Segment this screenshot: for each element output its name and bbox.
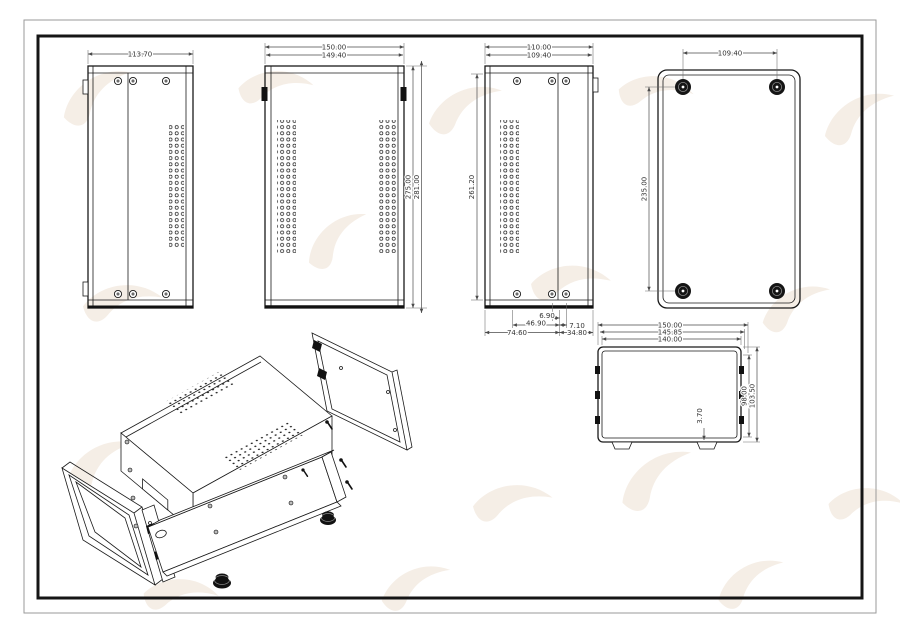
dim-text-b4: 74.60 xyxy=(507,329,527,337)
dim-text-b2: 46.90 xyxy=(526,320,546,328)
edge-clip xyxy=(262,87,268,101)
dim-text-b5: 34.80 xyxy=(567,329,587,337)
vent-holes-strip xyxy=(500,120,519,253)
dimension-heights: 275.00 281.00 xyxy=(405,61,428,313)
bottom-outline xyxy=(658,70,800,308)
dim-text-width-outer: 110.00 xyxy=(527,44,552,52)
dim-text-height: 261.20 xyxy=(468,175,476,200)
dim-text-width-outer: 150.00 xyxy=(322,44,347,52)
dim-text-height-inner: 275.00 xyxy=(405,175,413,200)
front-feet xyxy=(612,442,717,449)
screw-marks xyxy=(114,77,169,297)
vent-holes-strip-left xyxy=(277,120,296,253)
side-tab xyxy=(83,80,88,94)
screw-marks xyxy=(513,77,569,297)
front-outline xyxy=(598,347,741,442)
rubber-feet xyxy=(675,79,785,299)
dim-text-width: 113.70 xyxy=(128,51,153,59)
edge-clip xyxy=(401,87,407,101)
side-tab xyxy=(83,282,88,296)
bottom-inner-outline xyxy=(663,75,795,303)
edge-clips xyxy=(595,366,744,424)
view-front: 150.00 145.85 140.00 98.00 103.50 3.70 xyxy=(595,322,760,450)
dim-text-feet-width: 109.40 xyxy=(718,50,743,58)
dim-text-width-inner: 149.40 xyxy=(322,52,347,60)
front-inner-outline xyxy=(602,351,737,438)
dim-text-feet-height: 235.00 xyxy=(641,177,649,202)
dimension-wall-thickness: 3.70 xyxy=(696,408,704,440)
vent-holes-strip-right xyxy=(379,120,398,253)
dim-text-width-inner: 109.40 xyxy=(527,52,552,60)
drawing-canvas: 113.70 150.00 149.40 xyxy=(0,0,900,636)
dimension-widths: 110.00 109.40 xyxy=(485,43,593,64)
view-side-panel-b: 110.00 109.40 261.20 6.90 46.90 7.10 74.… xyxy=(468,43,598,337)
vent-holes-strip xyxy=(169,124,184,248)
view-isometric-exploded xyxy=(62,333,412,589)
dim-text-h2: 103.50 xyxy=(749,384,757,409)
side-tab xyxy=(593,78,598,92)
dimension-widths: 150.00 149.40 xyxy=(265,43,404,64)
dimension-feet-width: 109.40 xyxy=(683,49,777,79)
dim-text-h1: 98.00 xyxy=(741,386,749,406)
drawing-sheet: 113.70 150.00 149.40 xyxy=(0,0,900,636)
dimension-width: 113.70 xyxy=(88,50,193,64)
dim-text-wall: 3.70 xyxy=(696,408,704,424)
dimension-widths: 150.00 145.85 140.00 xyxy=(598,322,748,354)
dim-text-height-outer: 281.00 xyxy=(413,175,421,200)
dimension-heights: 98.00 103.50 xyxy=(741,347,761,442)
dim-text-w3: 140.00 xyxy=(658,336,683,344)
dimension-height: 261.20 xyxy=(468,74,483,300)
